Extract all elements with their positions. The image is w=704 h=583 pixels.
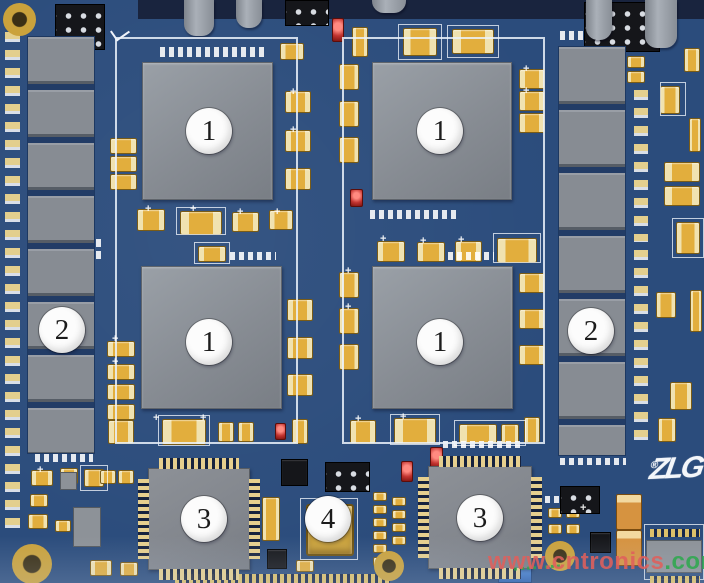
qfp-pins-top xyxy=(159,458,239,469)
qfp-pins-left xyxy=(418,477,429,558)
memory-chip-column-right xyxy=(558,46,626,456)
standoff xyxy=(586,0,612,40)
capacitor xyxy=(28,514,48,529)
capacitor xyxy=(656,292,676,318)
callout-4-power-module: 4 xyxy=(305,496,351,542)
capacitor xyxy=(373,531,387,540)
plus-mark: + xyxy=(37,464,47,474)
callout-3-qfp-left: 3 xyxy=(181,496,227,542)
plus-mark: + xyxy=(153,412,163,422)
qfp-pins-right xyxy=(531,477,542,558)
silkscreen-dashes xyxy=(35,454,93,462)
capacitor xyxy=(664,186,700,206)
qfp-pins-top xyxy=(439,456,521,467)
capacitor xyxy=(548,524,562,534)
callout-2-memory-right: 2 xyxy=(568,308,614,354)
plus-mark: + xyxy=(290,86,300,96)
capacitor xyxy=(296,560,314,572)
capacitor xyxy=(120,562,138,576)
capacitor xyxy=(664,162,700,182)
capacitor xyxy=(684,48,700,72)
callout-1-bga-bottom-left: 1 xyxy=(186,319,232,365)
plus-mark: + xyxy=(355,413,365,423)
silkscreen-outline xyxy=(80,465,108,491)
capacitor xyxy=(90,560,112,576)
plus-mark: + xyxy=(112,356,122,366)
capacitor xyxy=(373,505,387,514)
capacitor xyxy=(566,524,580,534)
gold-pad-row xyxy=(650,529,700,537)
qfp-pins-right xyxy=(249,479,260,559)
small-component-strip xyxy=(634,250,648,444)
plus-mark: + xyxy=(400,411,410,421)
small-component-strip xyxy=(634,90,648,242)
capacitor xyxy=(373,492,387,501)
standoff xyxy=(645,0,677,48)
pin-header xyxy=(325,462,370,492)
led xyxy=(401,461,413,482)
pcb-board: +++++++++++++++++++++ 1 1 1 1 2 2 3 3 4 … xyxy=(0,0,704,583)
capacitor xyxy=(627,71,645,83)
plus-mark: + xyxy=(274,206,284,216)
watermark: www.cntronics.com xyxy=(488,548,704,576)
capacitor xyxy=(118,470,134,484)
via-hole xyxy=(374,551,404,581)
ic-chip-small xyxy=(60,472,77,490)
small-component-strip xyxy=(5,32,20,528)
callout-3-qfp-right: 3 xyxy=(457,495,503,541)
plus-mark: + xyxy=(345,265,355,275)
capacitor xyxy=(262,497,280,541)
capacitor xyxy=(689,118,701,152)
ic-chip-black xyxy=(267,549,287,569)
callout-1-bga-top-right: 1 xyxy=(417,108,463,154)
silkscreen-outline xyxy=(660,82,686,116)
standoff xyxy=(184,0,214,36)
plus-mark: + xyxy=(458,234,468,244)
tantalum-capacitor xyxy=(616,494,642,530)
plus-mark: + xyxy=(237,206,247,216)
callout-2-memory-left: 2 xyxy=(39,307,85,353)
capacitor xyxy=(392,523,406,532)
capacitor xyxy=(627,56,645,68)
gold-pad-row xyxy=(650,576,700,583)
capacitor xyxy=(690,290,702,332)
ic-chip-black xyxy=(281,459,308,486)
zlg-logo: ZLG® xyxy=(647,453,660,487)
plus-mark: + xyxy=(200,412,210,422)
memory-chip-column-left xyxy=(27,36,95,454)
plus-mark: + xyxy=(345,301,355,311)
ic-chip-small xyxy=(73,507,101,547)
plus-mark: + xyxy=(580,502,590,512)
watermark-tld: .com xyxy=(664,548,704,575)
capacitor xyxy=(373,518,387,527)
capacitor xyxy=(392,536,406,545)
qfp-pins-left xyxy=(138,479,149,559)
plus-mark: + xyxy=(380,233,390,243)
plus-mark: + xyxy=(420,235,430,245)
zlg-logo-text: ZLG xyxy=(647,451,704,488)
capacitor xyxy=(55,520,71,532)
pin-header xyxy=(285,0,329,26)
callout-1-bga-bottom-right: 1 xyxy=(417,319,463,365)
watermark-domain: www.cntronics xyxy=(488,548,664,575)
plus-mark: + xyxy=(290,124,300,134)
plus-mark: + xyxy=(523,63,533,73)
silkscreen-outline xyxy=(672,218,704,258)
capacitor xyxy=(30,494,48,507)
plus-mark: + xyxy=(112,333,122,343)
silkscreen-dashes xyxy=(560,458,626,465)
plus-mark: + xyxy=(145,203,155,213)
plus-mark: + xyxy=(190,203,200,213)
via-hole xyxy=(12,544,52,583)
qfp-pins-bottom xyxy=(159,569,239,580)
via-hole xyxy=(3,3,36,36)
capacitor xyxy=(658,418,676,442)
callout-1-bga-top-left: 1 xyxy=(186,108,232,154)
standoff xyxy=(236,0,262,28)
capacitor xyxy=(670,382,692,410)
capacitor xyxy=(392,510,406,519)
capacitor xyxy=(392,497,406,506)
plus-mark: + xyxy=(523,85,533,95)
